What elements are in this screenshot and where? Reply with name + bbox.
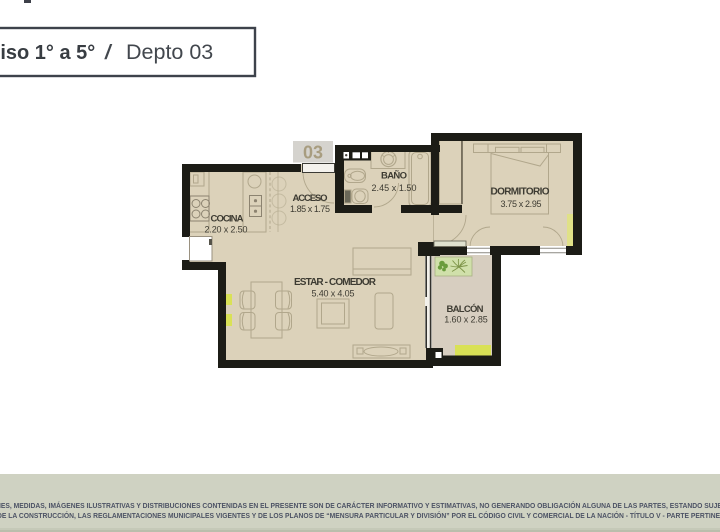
svg-text:BAÑO: BAÑO <box>381 171 407 182</box>
svg-text:2.45 x 1.50: 2.45 x 1.50 <box>372 183 417 193</box>
svg-text:1.85 x 1.75: 1.85 x 1.75 <box>290 204 330 214</box>
svg-text:3.75 x 2.95: 3.75 x 2.95 <box>501 199 542 209</box>
svg-text:5.40 x 4.05: 5.40 x 4.05 <box>312 289 355 299</box>
svg-text:NES, MEDIDAS, IMÁGENES ILUSTRA: NES, MEDIDAS, IMÁGENES ILUSTRATIVAS Y DI… <box>0 501 720 510</box>
svg-text:DORMITORIO: DORMITORIO <box>491 187 550 198</box>
svg-text:2.20 x 2.50: 2.20 x 2.50 <box>205 225 248 235</box>
svg-text:COCINA: COCINA <box>211 214 244 225</box>
svg-text:Depto 03: Depto 03 <box>126 40 213 64</box>
svg-text:03: 03 <box>303 143 323 163</box>
svg-text:BALCÓN: BALCÓN <box>447 303 484 315</box>
svg-text:ACCESO: ACCESO <box>293 193 328 204</box>
svg-text:1.60 x 2.85: 1.60 x 2.85 <box>444 315 488 325</box>
svg-text:Piso 1° a 5°: Piso 1° a 5° <box>0 42 95 64</box>
svg-text:DE LA CONSTRUCCIÓN, LAS REGLAM: DE LA CONSTRUCCIÓN, LAS REGLAMENTACIONES… <box>0 511 720 520</box>
svg-text:ESTAR - COMEDOR: ESTAR - COMEDOR <box>294 277 377 288</box>
